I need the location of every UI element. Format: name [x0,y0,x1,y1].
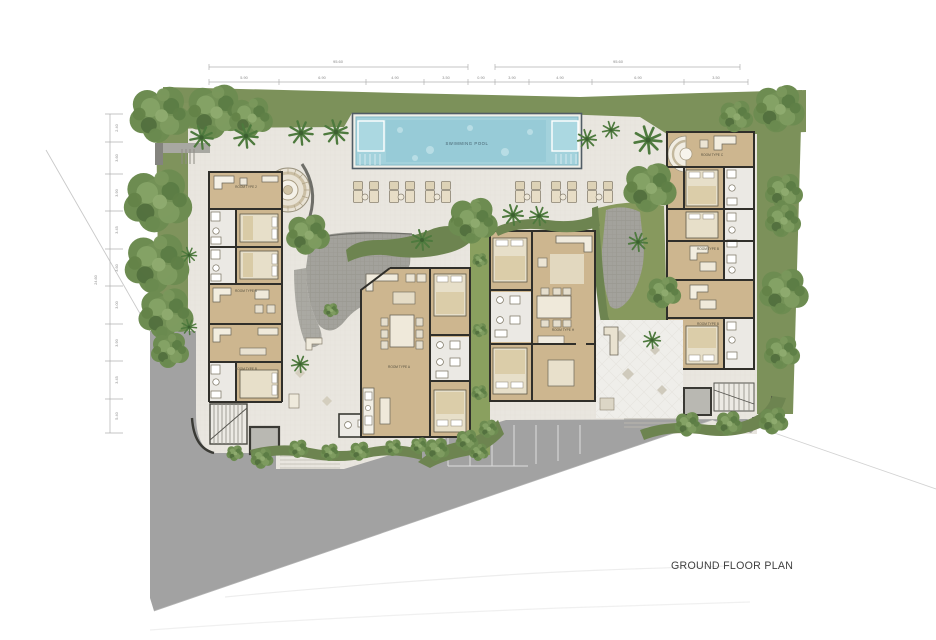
svg-text:5.90: 5.90 [240,76,247,80]
svg-text:3.60: 3.60 [115,154,119,161]
svg-text:5.40: 5.40 [115,412,119,419]
svg-text:ROOM TYPE B: ROOM TYPE B [697,247,719,251]
svg-text:3.90: 3.90 [508,76,515,80]
svg-text:95.60: 95.60 [613,59,624,64]
svg-text:ROOM TYPE B: ROOM TYPE B [697,322,719,326]
svg-text:SWIMMING POOL: SWIMMING POOL [446,141,489,146]
svg-text:95.60: 95.60 [333,59,344,64]
svg-text:3.50: 3.50 [442,76,449,80]
svg-text:3.50: 3.50 [712,76,719,80]
svg-text:6.90: 6.90 [634,76,641,80]
svg-text:ROOM TYPE A: ROOM TYPE A [388,365,411,369]
svg-text:24.60: 24.60 [94,275,98,285]
svg-text:4.90: 4.90 [391,76,398,80]
svg-text:3.00: 3.00 [115,301,119,308]
svg-text:ROOM TYPE B: ROOM TYPE B [235,289,257,293]
svg-text:ROOM TYPE H: ROOM TYPE H [552,328,575,332]
svg-text:3.90: 3.90 [115,189,119,196]
svg-text:0.90: 0.90 [477,76,484,80]
svg-text:3.60: 3.60 [115,264,119,271]
svg-text:GROUND FLOOR PLAN: GROUND FLOOR PLAN [671,560,793,572]
svg-text:ROOM TYPE 2: ROOM TYPE 2 [235,185,257,189]
svg-text:ROOM TYPE B: ROOM TYPE B [235,367,257,371]
svg-text:2.40: 2.40 [115,124,119,131]
svg-text:ROOM TYPE C: ROOM TYPE C [701,153,724,157]
svg-text:3.45: 3.45 [115,226,119,233]
svg-text:6.90: 6.90 [318,76,325,80]
svg-text:3.45: 3.45 [115,376,119,383]
svg-text:4.90: 4.90 [556,76,563,80]
svg-text:3.90: 3.90 [115,339,119,346]
